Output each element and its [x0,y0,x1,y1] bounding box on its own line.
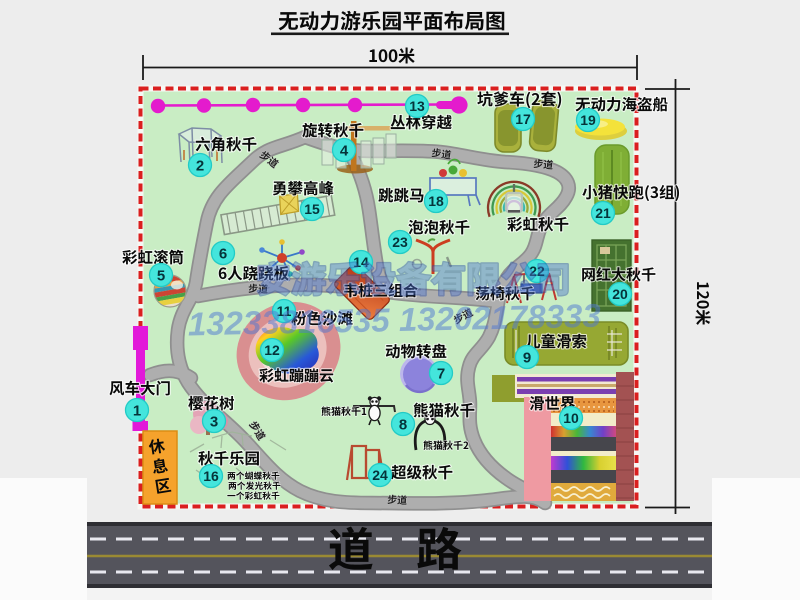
svg-text:12: 12 [264,342,280,358]
svg-text:6: 6 [219,245,227,262]
svg-text:16: 16 [203,468,219,484]
svg-text:9: 9 [523,349,531,366]
svg-text:18: 18 [428,193,444,209]
svg-text:17: 17 [515,111,531,127]
svg-text:5: 5 [157,267,165,284]
svg-text:20: 20 [612,286,628,302]
svg-text:8: 8 [399,416,407,433]
svg-text:7: 7 [437,365,445,382]
svg-text:10: 10 [563,410,579,426]
svg-text:15: 15 [304,201,320,217]
svg-text:2: 2 [196,157,204,174]
svg-text:13: 13 [409,98,425,114]
svg-text:23: 23 [392,234,408,250]
svg-text:1: 1 [133,402,141,419]
svg-text:4: 4 [340,142,349,159]
svg-text:24: 24 [372,467,388,483]
svg-text:19: 19 [580,112,596,128]
svg-text:3: 3 [210,413,218,430]
svg-text:21: 21 [595,205,611,221]
